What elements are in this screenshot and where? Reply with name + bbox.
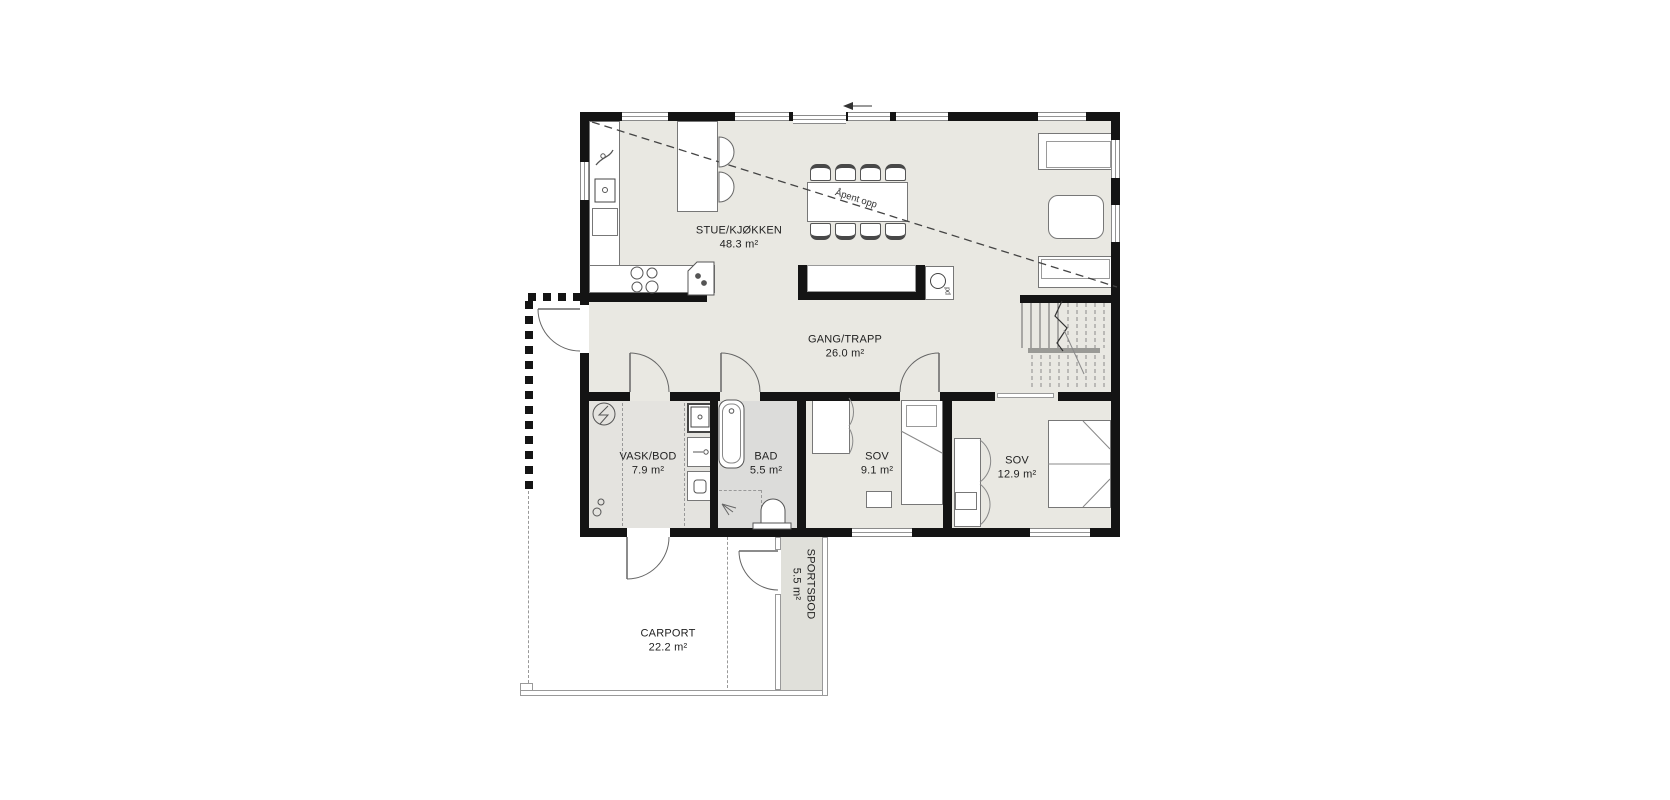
room-label-carport: CARPORT 22.2 m² — [641, 628, 696, 655]
dining-chair — [835, 223, 856, 240]
roof-overhang-dashed — [525, 301, 533, 491]
dining-chair — [810, 164, 831, 181]
room-name: BAD — [750, 451, 782, 465]
wall-left — [580, 112, 589, 162]
room-name: SPORTSBOD — [803, 549, 817, 620]
wall-bottom — [1090, 528, 1120, 537]
wall-top — [668, 112, 735, 121]
sliding-door-panel — [793, 115, 846, 124]
window-kitchen — [622, 112, 668, 121]
kitchen-island — [677, 121, 718, 212]
stair-wall — [1020, 295, 1111, 303]
room-label-gang-trapp: GANG/TRAPP 26.0 m² — [808, 334, 882, 361]
room-area: 48.3 m² — [696, 238, 782, 252]
wall-gang-rooms — [670, 392, 720, 401]
dining-chair — [860, 164, 881, 181]
sportsbod-roof-dashed — [727, 537, 728, 688]
wall-bottom — [580, 528, 627, 537]
wall-right — [1111, 178, 1120, 205]
dining-chair — [835, 164, 856, 181]
dining-chair — [885, 164, 906, 181]
wall-top — [948, 112, 1038, 121]
window-stue — [848, 112, 890, 121]
room-area: 7.9 m² — [619, 464, 676, 478]
wardrobe-sov2 — [954, 438, 981, 527]
wall-vask-bad — [710, 401, 718, 528]
kitchen-counter-bottom — [589, 265, 715, 293]
floor-plan: STUE/KJØKKEN 48.3 m² GANG/TRAPP 26.0 m² … — [0, 0, 1670, 800]
room-label-vask-bod: VASK/BOD 7.9 m² — [619, 451, 676, 478]
shower-zone-dashed — [761, 490, 762, 528]
window-stue-east — [1111, 140, 1120, 178]
dining-chair — [860, 223, 881, 240]
wall-gang-rooms — [760, 392, 900, 401]
sportsbod-wall-east — [822, 537, 828, 696]
dining-chair — [885, 223, 906, 240]
door-leaf-sov2 — [997, 393, 1054, 398]
window-stue-east — [1111, 205, 1120, 242]
wall-left — [580, 353, 589, 537]
media-halfwall-bottom — [798, 292, 925, 300]
pillow — [906, 405, 937, 427]
kitchen-halfwall — [589, 293, 707, 302]
wall-gang-rooms — [589, 392, 630, 401]
wall-bottom — [670, 528, 852, 537]
sofa-cushion-line — [1041, 259, 1110, 279]
room-area: 5.5 m² — [750, 464, 782, 478]
wall-gang-rooms — [940, 392, 995, 401]
carport-door-arc — [627, 537, 669, 579]
wall-sov1-sov2 — [943, 401, 952, 528]
room-area: 26.0 m² — [808, 347, 882, 361]
coffee-table — [1048, 195, 1104, 239]
room-label-stue-kjokken: STUE/KJØKKEN 48.3 m² — [696, 225, 782, 252]
bed-double — [1048, 420, 1111, 508]
dishwasher — [592, 208, 618, 236]
window-kitchen-west — [580, 162, 589, 200]
wall-right — [1111, 242, 1120, 537]
nightstand-sov2 — [955, 492, 977, 510]
laundry-clearance-dashed — [684, 403, 685, 526]
room-name: VASK/BOD — [619, 451, 676, 465]
media-niche — [807, 265, 916, 292]
room-label-sov1: SOV 9.1 m² — [861, 451, 893, 478]
room-name: STUE/KJØKKEN — [696, 225, 782, 239]
sofa-cushion-line — [1046, 141, 1111, 168]
carport-wall-bottom — [520, 690, 828, 696]
room-name: SOV — [861, 451, 893, 465]
room-area: 22.2 m² — [641, 641, 696, 655]
window-stue — [1038, 112, 1086, 121]
chimney-flue-label: pd — [944, 287, 951, 295]
dresser-sov1 — [866, 491, 892, 508]
wall-bottom — [912, 528, 1030, 537]
wall-gang-rooms — [1058, 392, 1111, 401]
window-sov1 — [852, 528, 912, 537]
room-area: 5.5 m² — [790, 549, 804, 620]
wardrobe-sov1 — [812, 396, 850, 454]
sportsbod-door-arc — [739, 551, 778, 590]
window-stue — [735, 112, 789, 121]
room-name: GANG/TRAPP — [808, 334, 882, 348]
room-name: SOV — [998, 455, 1037, 469]
wall-right — [1111, 112, 1120, 140]
window-sov2 — [1030, 528, 1090, 537]
shower-zone-dashed — [719, 490, 761, 491]
wall-bad-sov1 — [797, 401, 806, 528]
media-halfwall-right — [916, 265, 925, 300]
room-label-sov2: SOV 12.9 m² — [998, 455, 1037, 482]
carport-edge-dashed — [528, 491, 529, 683]
roof-overhang-dashed — [528, 293, 580, 301]
room-area: 9.1 m² — [861, 464, 893, 478]
sofa-bottom — [1038, 256, 1113, 288]
room-label-sportsbod: SPORTSBOD 5.5 m² — [790, 549, 817, 620]
sofa-top — [1038, 133, 1113, 170]
stair-landing-edge — [1028, 348, 1100, 353]
window-stue — [896, 112, 948, 121]
room-name: CARPORT — [641, 628, 696, 642]
sportsbod-wall-west — [775, 594, 781, 690]
entry-door-arc — [538, 309, 580, 351]
sliding-door-arrow-icon — [843, 102, 872, 110]
sportsbod-wall-west — [775, 537, 781, 550]
dining-chair — [810, 223, 831, 240]
room-label-bad: BAD 5.5 m² — [750, 451, 782, 478]
wall-left — [580, 200, 589, 305]
room-area: 12.9 m² — [998, 468, 1037, 482]
